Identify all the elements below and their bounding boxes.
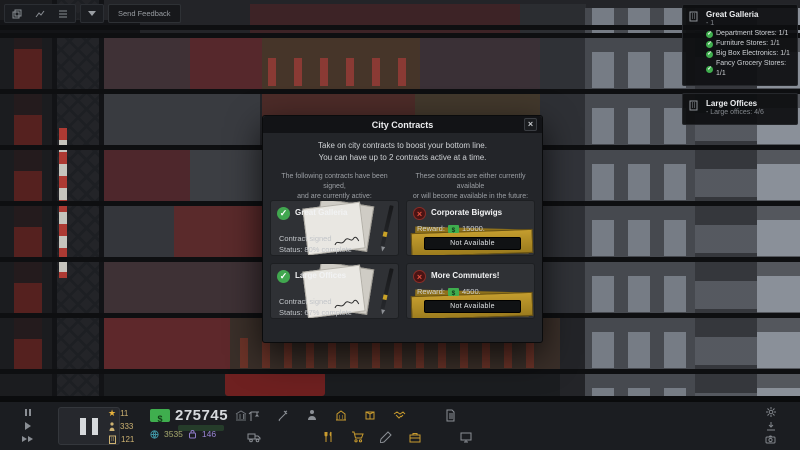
goal-card-great-galleria[interactable]: Great Galleria - 1 Department Stores: 1/… <box>682 4 798 86</box>
building-icon <box>688 100 699 111</box>
contract-card-available: × Corporate Bigwigs Reward: 15000. Not A… <box>406 200 535 256</box>
city-contracts-modal: City Contracts × Take on city contracts … <box>262 115 543 343</box>
pause-speed-icon[interactable] <box>25 409 31 416</box>
contract-name: Great Galleria <box>295 208 347 217</box>
goal-item: Department Stores: 1/1 <box>706 29 792 39</box>
signed-column-header: The following contracts have been signed… <box>270 172 399 193</box>
contract-card-signed: ✓ Great Galleria Contract signed Status:… <box>270 200 399 256</box>
pen-icon <box>380 205 393 247</box>
reward-row: Reward: 15000. <box>417 224 485 233</box>
influence-value: 146 <box>202 429 216 439</box>
contract-progress: Status: 67% complete <box>279 308 352 317</box>
check-circle-icon: ✓ <box>277 270 290 283</box>
goal-item: Big Box Electronics: 1/1 <box>706 49 792 59</box>
system-buttons <box>765 407 776 444</box>
reward-value: 15000. <box>462 224 485 233</box>
utensils-icon[interactable] <box>320 430 336 444</box>
contract-card-available: × More Commuters! Reward: 4500. Not Avai… <box>406 263 535 319</box>
star-icon: ★ <box>108 409 116 418</box>
pencil-icon[interactable] <box>378 430 394 444</box>
population-value: 333 <box>120 422 133 431</box>
check-icon <box>706 66 713 73</box>
crane-icon[interactable] <box>246 408 262 422</box>
gear-icon[interactable] <box>766 407 776 417</box>
signed-contracts-column: The following contracts have been signed… <box>270 172 399 319</box>
office-icon <box>108 435 117 444</box>
contract-name: More Commuters! <box>431 271 499 280</box>
check-circle-icon: ✓ <box>277 207 290 220</box>
money-icon <box>448 225 459 233</box>
contract-status: Contract signed <box>279 297 332 306</box>
hud-substats: 3535 146 <box>150 429 216 439</box>
not-available-button[interactable]: Not Available <box>424 300 521 313</box>
goal-title: Large Offices <box>706 99 792 108</box>
prestige-value: 11 <box>120 409 128 418</box>
contract-name: Corporate Bigwigs <box>431 208 502 217</box>
money-icon <box>150 409 170 422</box>
contract-status: Contract signed <box>279 234 332 243</box>
modal-intro: Take on city contracts to boost your bot… <box>263 140 542 163</box>
reward-value: 4500. <box>462 287 481 296</box>
fast-forward-icon[interactable] <box>22 436 33 442</box>
check-icon <box>706 51 713 58</box>
chart-icon[interactable] <box>35 9 45 19</box>
chevron-down-icon <box>88 11 96 16</box>
speed-controls <box>22 409 33 442</box>
handshake-icon[interactable] <box>391 408 407 422</box>
hud-stats: ★11 333 121 <box>108 407 134 446</box>
bottom-hud: ★11 333 121 275745 3535 146 <box>0 400 800 450</box>
close-icon[interactable]: × <box>524 118 537 131</box>
available-contracts-column: These contracts are either currently ava… <box>406 172 535 319</box>
layers-icon[interactable] <box>12 9 22 19</box>
goal-title: Great Galleria <box>706 10 792 19</box>
money-readout: 275745 <box>150 407 247 424</box>
goal-subtitle: - Large offices: 4/6 <box>706 109 792 116</box>
goal-subtitle: - 1 <box>706 20 792 27</box>
contract-card-signed: ✓ Large Offices Contract signed Status: … <box>270 263 399 319</box>
document-icon[interactable] <box>442 408 458 422</box>
build-toolbar <box>246 407 487 450</box>
building-icon <box>688 11 699 22</box>
check-icon <box>706 31 713 38</box>
person-icon <box>108 422 116 431</box>
camera-icon[interactable] <box>765 435 776 444</box>
not-available-button[interactable]: Not Available <box>424 237 521 250</box>
traffic-value: 3535 <box>164 429 183 439</box>
briefcase-icon[interactable] <box>407 430 423 444</box>
send-feedback-button[interactable]: Send Feedback <box>108 4 181 23</box>
goal-item: Furniture Stores: 1/1 <box>706 39 792 49</box>
contract-name: Large Offices <box>295 271 346 280</box>
x-circle-icon: × <box>413 207 426 220</box>
box-icon[interactable] <box>362 408 378 422</box>
monitor-icon[interactable] <box>458 430 474 444</box>
truck-icon[interactable] <box>246 430 262 444</box>
modal-header: City Contracts × <box>263 116 542 133</box>
building-icon[interactable] <box>333 408 349 422</box>
app-window: Send Feedback Great Galleria - 1 Departm… <box>0 0 800 450</box>
list-icon[interactable] <box>58 9 68 19</box>
contract-progress: Status: 80% complete <box>279 245 352 254</box>
goal-item: Fancy Grocery Stores: 1/1 <box>706 59 792 79</box>
available-column-header: These contracts are either currently ava… <box>406 172 535 193</box>
workers-value: 121 <box>121 435 134 444</box>
money-icon <box>448 288 459 296</box>
play-speed-icon[interactable] <box>25 422 31 430</box>
modal-title: City Contracts <box>372 120 434 130</box>
traffic-icon <box>150 430 159 439</box>
goal-card-large-offices[interactable]: Large Offices - Large offices: 4/6 <box>682 93 798 125</box>
reward-row: Reward: 4500. <box>417 287 481 296</box>
cart-icon[interactable] <box>349 430 365 444</box>
influence-icon <box>188 430 197 439</box>
money-value: 275745 <box>175 407 228 424</box>
collapse-toolbar-button[interactable] <box>80 4 104 23</box>
check-icon <box>706 41 713 48</box>
tools-icon[interactable] <box>275 408 291 422</box>
x-circle-icon: × <box>413 270 426 283</box>
goals-panel: Great Galleria - 1 Department Stores: 1/… <box>682 4 798 132</box>
pen-icon <box>380 268 393 310</box>
top-toolbar <box>4 4 76 23</box>
worker-icon[interactable] <box>304 408 320 422</box>
download-icon[interactable] <box>766 421 776 431</box>
